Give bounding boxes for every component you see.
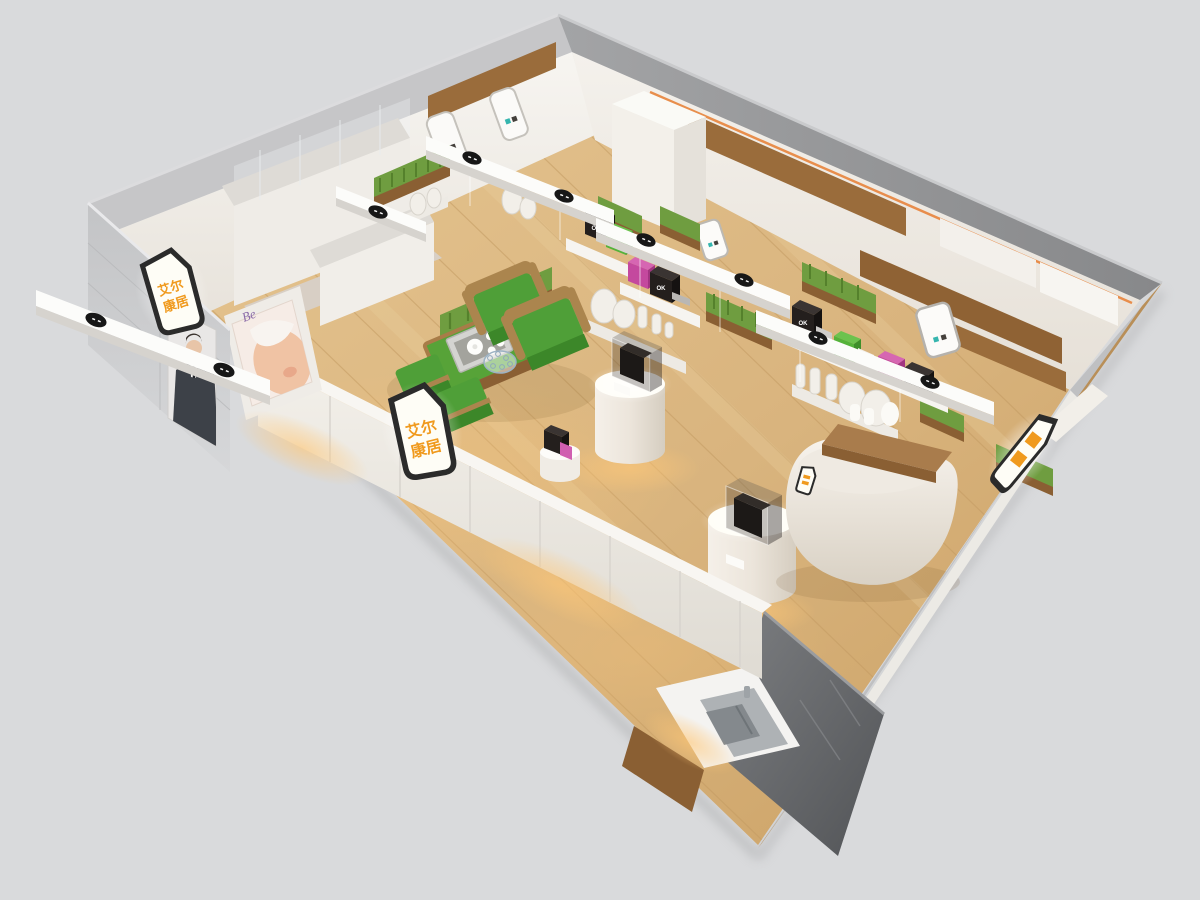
sink-faucet: [744, 686, 750, 698]
glass-decor: [484, 351, 516, 373]
cube-label: OK: [799, 321, 809, 327]
scene-canvas: OK OK OK: [0, 0, 1200, 900]
cube-label: OK: [657, 286, 667, 292]
showroom-render: OK OK OK: [0, 0, 1200, 900]
